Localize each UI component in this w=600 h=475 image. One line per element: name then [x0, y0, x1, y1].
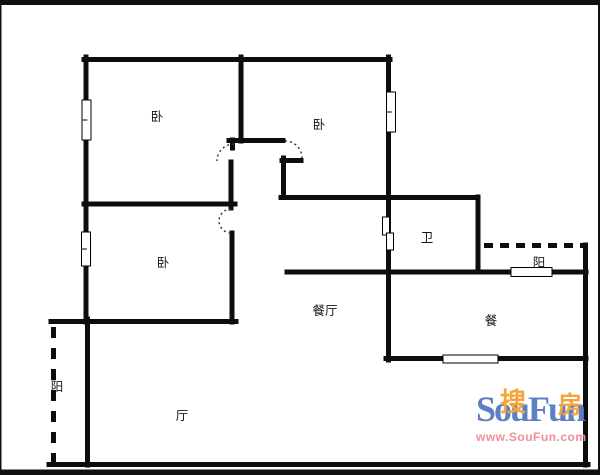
sliding-door-panel [387, 233, 394, 250]
sliding-door-panel [383, 217, 390, 235]
room-label-dining-hall: 餐厅 [312, 303, 337, 318]
room-label-bedroom-top-right: 卧 [313, 117, 326, 132]
frame-top-bar [0, 0, 600, 5]
room-label-living-hall: 厅 [176, 408, 189, 423]
door-swing-arc [285, 141, 302, 158]
room-label-bedroom-mid-left: 卧 [157, 255, 170, 270]
floorplan-page: 卧卧卧卫阳餐厅餐厅阳 SouFun 搜 房 www.SouFun.com [0, 0, 600, 475]
frame-left-bar [0, 0, 2, 475]
room-label-balcony-left: 阳 [51, 379, 64, 394]
frame-bottom-bar [0, 470, 600, 475]
window-symbol [511, 268, 552, 277]
floor-plan-svg: 卧卧卧卫阳餐厅餐厅阳 [0, 0, 600, 475]
window-symbol [443, 355, 498, 363]
room-label-dining-room: 餐 [485, 313, 498, 328]
door-swing-arc [219, 209, 231, 233]
room-label-bathroom: 卫 [421, 230, 434, 245]
room-label-balcony-right: 阳 [533, 255, 546, 270]
room-label-bedroom-top-left: 卧 [151, 109, 164, 124]
